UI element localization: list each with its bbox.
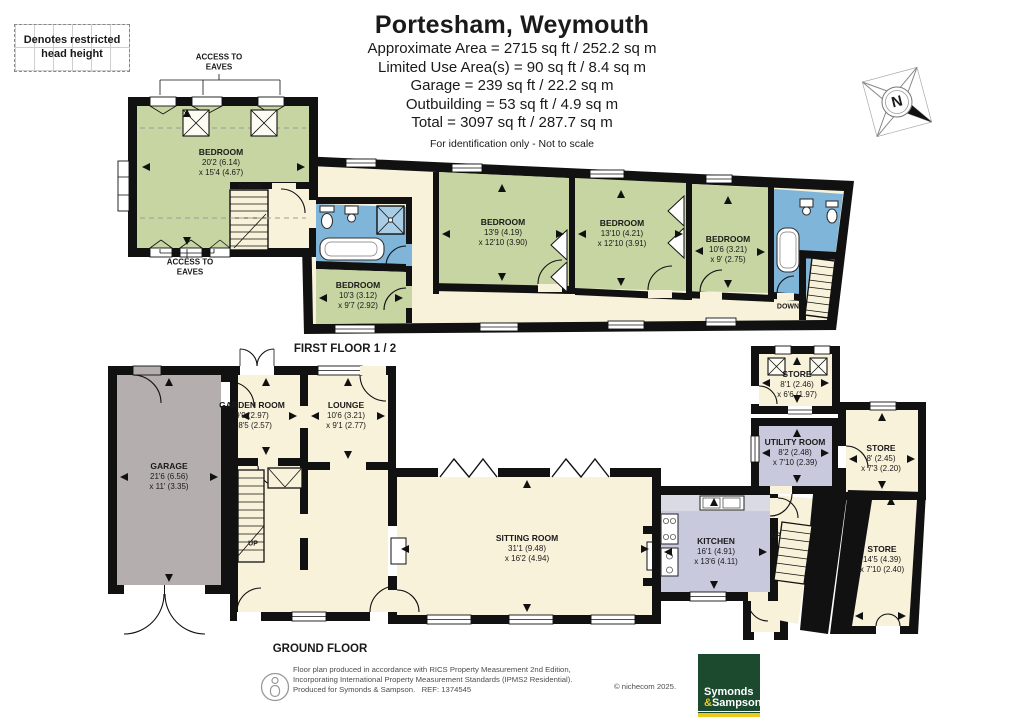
room-label-bedroom4: BEDROOM 13'10 (4.21) x 12'10 (3.91) xyxy=(598,218,647,250)
room-label-utility-room: UTILITY ROOM 8'2 (2.48) x 7'10 (2.39) xyxy=(765,437,826,469)
down-label-left: DOWN xyxy=(239,184,261,191)
room-label-store-outbuilding: STORE 8'1 (2.46) x 6'6 (1.97) xyxy=(777,369,817,401)
down-label-right: DOWN xyxy=(777,304,799,311)
room-label-sitting-room: SITTING ROOM 31'1 (9.48) x 16'2 (4.94) xyxy=(496,533,558,565)
ground-floor-label: GROUND FLOOR xyxy=(273,643,368,655)
room-label-garage: GARAGE 21'6 (6.56) x 11' (3.35) xyxy=(149,461,188,493)
limited-use-area: Limited Use Area(s) = 90 sq ft / 8.4 sq … xyxy=(0,59,1024,78)
logo-ampersand: & xyxy=(704,697,712,709)
room-label-garden-room: GARDEN ROOM 9'9 (2.97) x 8'5 (2.57) xyxy=(219,400,285,432)
person-icon xyxy=(262,674,289,701)
up-label-left: UP xyxy=(248,541,258,548)
total-area: Total = 3097 sq ft / 287.7 sq m xyxy=(0,114,1024,133)
floorplan-page: Denotes restricted head height Portesham… xyxy=(0,0,1024,724)
up-label-right: UP xyxy=(771,533,781,540)
logo-white-line xyxy=(698,711,760,712)
logo-word2: &Sampson xyxy=(704,697,761,709)
plan-header: Portesham, Weymouth Approximate Area = 2… xyxy=(0,11,1024,150)
room-label-store-mid: STORE 8' (2.45) x 7'3 (2.20) xyxy=(861,443,901,475)
stairs-first-floor-left xyxy=(230,190,268,250)
stairs-ground-floor-left xyxy=(238,470,264,562)
garage-area: Garage = 239 sq ft / 22.2 sq m xyxy=(0,77,1024,96)
symonds-sampson-logo: Symonds &Sampson xyxy=(698,654,760,717)
access-to-eaves-label-bottom: ACCESS TO EAVES xyxy=(160,257,220,276)
copyright-notice: © nichecom 2025. xyxy=(614,682,676,691)
logo-yellow-band xyxy=(698,713,760,717)
room-label-bedroom1: BEDROOM 20'2 (6.14) x 15'4 (4.67) xyxy=(199,147,243,179)
room-label-bedroom2: BEDROOM 10'3 (3.12) x 9'7 (2.92) xyxy=(336,280,380,312)
logo-word2-text: Sampson xyxy=(712,697,762,709)
page-title: Portesham, Weymouth xyxy=(0,11,1024,40)
outbuilding-area: Outbuilding = 53 sq ft / 4.9 sq m xyxy=(0,96,1024,115)
disclaimer: For identification only - Not to scale xyxy=(0,138,1024,150)
room-label-store-rear: STORE 14'5 (4.39) x 7'10 (2.40) xyxy=(860,544,904,576)
footer-line2: Incorporating International Property Mea… xyxy=(293,675,628,685)
footer-line3: Produced for Symonds & Sampson. REF: 137… xyxy=(293,685,628,695)
first-floor-label: FIRST FLOOR 1 / 2 xyxy=(294,343,396,355)
footer-line1: Floor plan produced in accordance with R… xyxy=(293,665,628,675)
room-label-bedroom3: BEDROOM 13'9 (4.19) x 12'10 (3.90) xyxy=(479,217,528,249)
approximate-area: Approximate Area = 2715 sq ft / 252.2 sq… xyxy=(0,40,1024,59)
footer-disclaimer: Floor plan produced in accordance with R… xyxy=(293,665,628,695)
room-label-kitchen: KITCHEN 16'1 (4.91) x 13'6 (4.11) xyxy=(694,536,738,568)
room-label-lounge: LOUNGE 10'6 (3.21) x 9'1 (2.77) xyxy=(326,400,366,432)
room-label-bedroom5: BEDROOM 10'6 (3.21) x 9' (2.75) xyxy=(706,234,750,266)
